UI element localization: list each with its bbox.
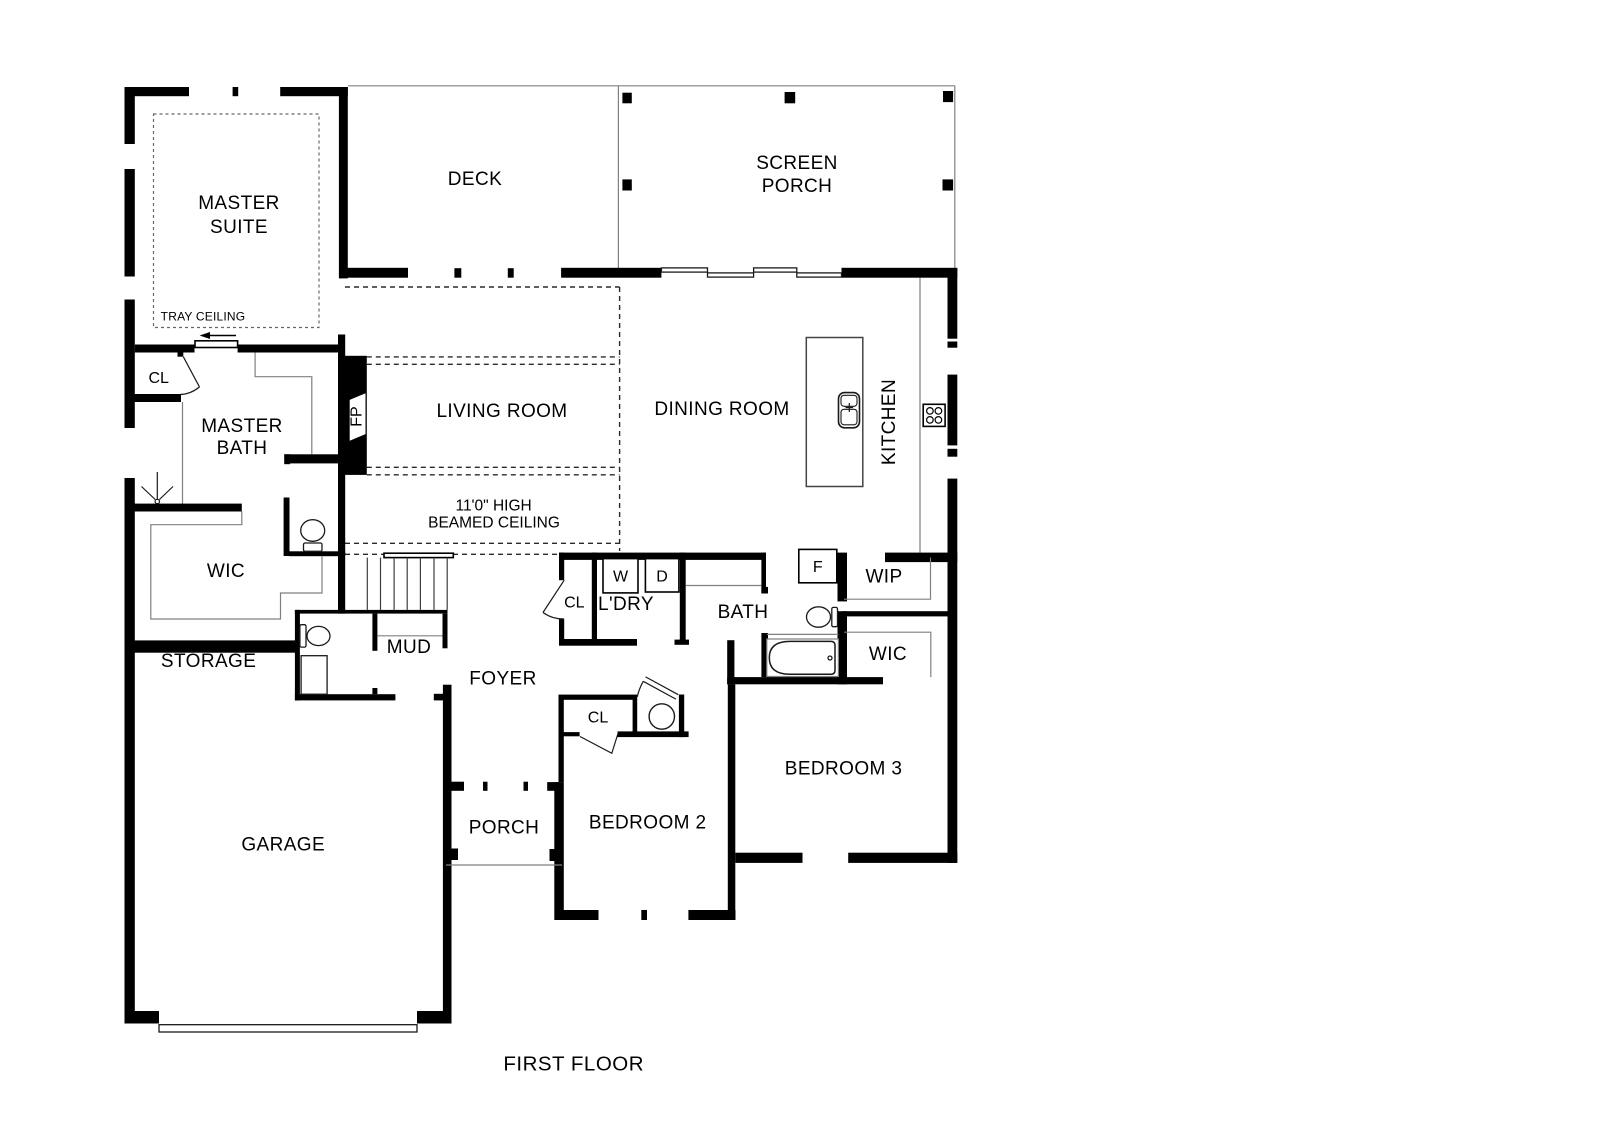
- svg-text:SUITE: SUITE: [210, 217, 268, 238]
- svg-text:BATH: BATH: [718, 602, 769, 623]
- svg-text:CL: CL: [588, 710, 609, 727]
- svg-text:SCREEN: SCREEN: [756, 153, 838, 174]
- svg-text:MASTER: MASTER: [198, 193, 280, 214]
- svg-text:FIRST FLOOR: FIRST FLOOR: [503, 1053, 644, 1076]
- svg-text:DECK: DECK: [448, 169, 502, 190]
- svg-text:STORAGE: STORAGE: [161, 651, 256, 672]
- svg-text:BEDROOM 2: BEDROOM 2: [589, 813, 707, 834]
- svg-text:L'DRY: L'DRY: [598, 594, 654, 615]
- svg-text:CL: CL: [564, 595, 585, 612]
- svg-text:LIVING ROOM: LIVING ROOM: [436, 401, 567, 422]
- svg-text:WIC: WIC: [869, 644, 907, 665]
- svg-text:KITCHEN: KITCHEN: [879, 379, 900, 465]
- svg-text:PORCH: PORCH: [469, 818, 540, 839]
- svg-text:FP: FP: [349, 406, 366, 426]
- svg-text:MUD: MUD: [387, 637, 431, 658]
- svg-text:D: D: [656, 569, 668, 586]
- svg-text:WIP: WIP: [865, 567, 902, 588]
- svg-text:DINING ROOM: DINING ROOM: [654, 399, 789, 420]
- svg-text:BATH: BATH: [217, 438, 268, 459]
- svg-text:MASTER: MASTER: [201, 416, 283, 437]
- svg-text:BEAMED CEILING: BEAMED CEILING: [428, 515, 560, 532]
- svg-text:W: W: [613, 569, 629, 586]
- svg-text:BEDROOM 3: BEDROOM 3: [785, 759, 903, 780]
- svg-text:TRAY CEILING: TRAY CEILING: [161, 310, 246, 324]
- svg-text:GARAGE: GARAGE: [241, 835, 325, 856]
- svg-text:F: F: [813, 559, 823, 576]
- svg-text:CL: CL: [148, 370, 169, 387]
- svg-text:PORCH: PORCH: [762, 176, 833, 197]
- svg-text:11'0" HIGH: 11'0" HIGH: [455, 498, 531, 515]
- svg-text:FOYER: FOYER: [469, 669, 536, 690]
- svg-text:WIC: WIC: [207, 561, 245, 582]
